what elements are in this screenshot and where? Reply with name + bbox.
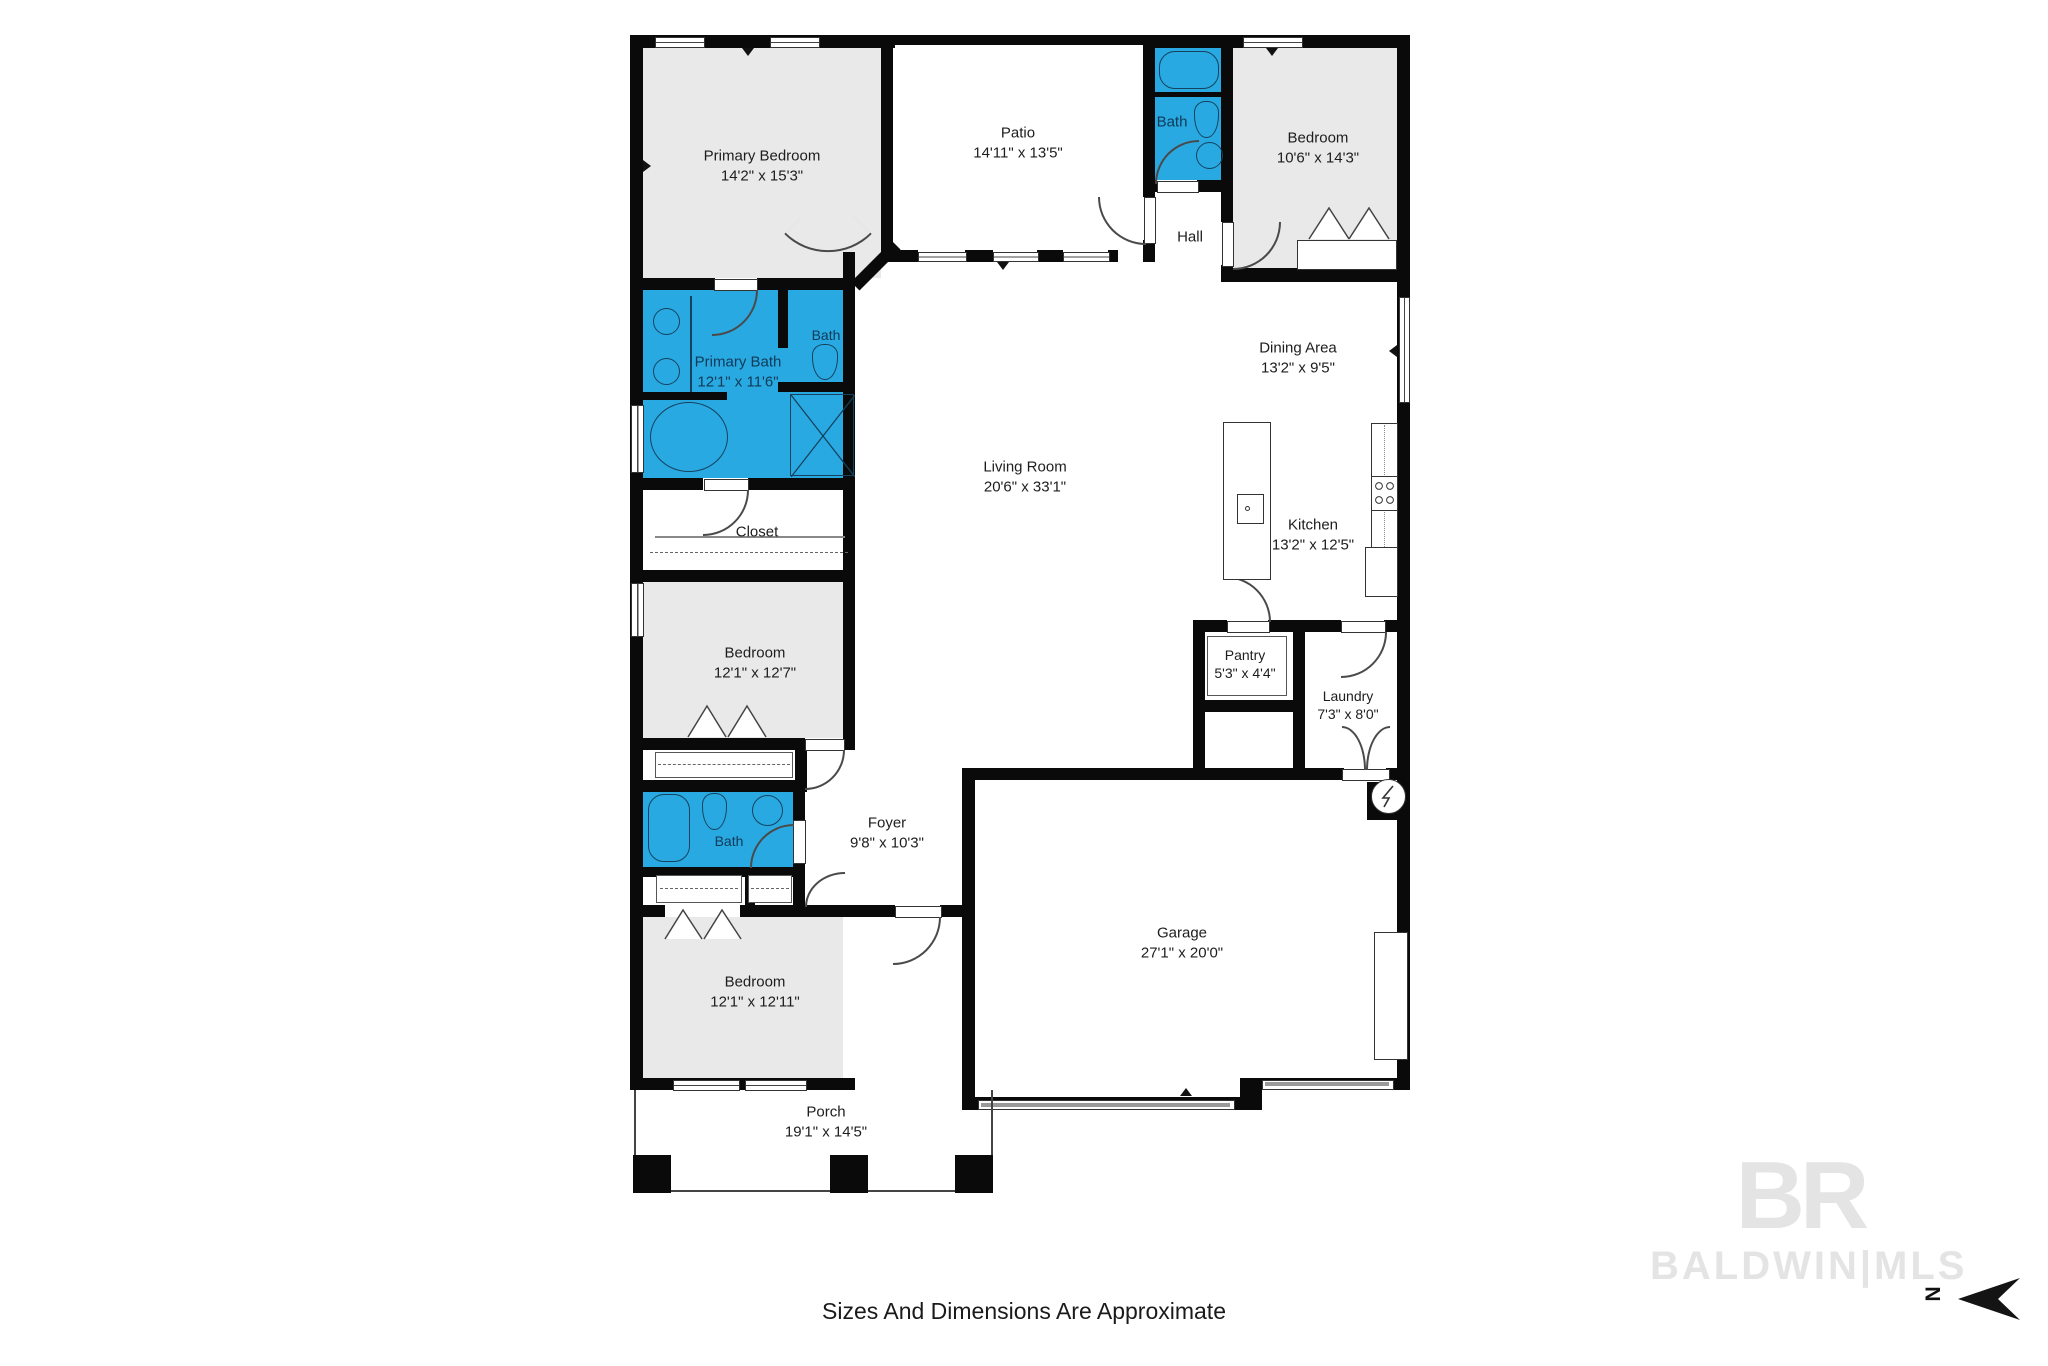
wall xyxy=(1221,35,1233,222)
baldwin-monogram: BR xyxy=(1650,1148,1950,1244)
closet-linen xyxy=(655,752,793,778)
wall xyxy=(1384,620,1410,632)
wall xyxy=(1305,620,1341,632)
door-arc-icon xyxy=(1341,632,1387,678)
window-icon xyxy=(673,1080,740,1091)
porch-post xyxy=(830,1155,868,1193)
wall xyxy=(881,250,918,262)
closet-linen xyxy=(656,875,742,903)
window-icon xyxy=(993,252,1039,262)
door-arc-icon xyxy=(805,872,845,907)
wall xyxy=(962,780,975,1105)
dim-arrow xyxy=(643,160,651,172)
room-label-garage: Garage27'1" x 20'0" xyxy=(1141,924,1223,963)
closet-rod xyxy=(658,764,790,765)
window-icon xyxy=(1243,37,1303,48)
door-icon xyxy=(1227,621,1270,633)
wall xyxy=(1221,265,1233,282)
wall xyxy=(748,478,855,490)
window-icon xyxy=(631,405,644,473)
tub-icon xyxy=(650,402,728,472)
faucet-icon xyxy=(1245,506,1250,511)
wall xyxy=(1143,35,1155,197)
wall xyxy=(643,905,665,917)
window-icon xyxy=(1399,297,1410,403)
wall xyxy=(843,252,855,750)
window-icon xyxy=(918,252,967,262)
dim-arrow xyxy=(1180,1088,1192,1096)
stove-icon xyxy=(1371,476,1398,511)
bifold-door-icon xyxy=(664,908,742,940)
room-label-living: Living Room20'6" x 33'1" xyxy=(983,458,1066,497)
room-label-kitchen: Kitchen13'2" x 12'5" xyxy=(1272,516,1354,555)
door-arc-icon xyxy=(1342,726,1366,770)
garage-side-rect xyxy=(1374,932,1408,1060)
door-arc-icon xyxy=(1366,726,1390,770)
window-icon xyxy=(631,583,644,637)
wall xyxy=(965,250,993,262)
room-label-bedroom-mid: Bedroom12'1" x 12'7" xyxy=(714,644,796,683)
room-label-closet: Closet xyxy=(736,522,779,542)
door-arc-icon xyxy=(893,917,941,965)
room-label-primary-bath: Primary Bath12'1" x 11'6" xyxy=(695,353,782,392)
door-icon xyxy=(793,820,806,864)
sink-icon xyxy=(1196,142,1223,169)
closet-linen xyxy=(748,875,792,903)
wall xyxy=(643,570,855,582)
closet-rod xyxy=(751,888,789,889)
window-icon xyxy=(745,1080,807,1091)
closet-recess xyxy=(1297,240,1397,270)
dim-arrow xyxy=(742,48,754,56)
garage-door xyxy=(1265,1082,1389,1086)
garage-door xyxy=(981,1103,1230,1107)
tub-icon xyxy=(1159,51,1219,89)
wall xyxy=(757,278,855,290)
wall xyxy=(630,278,715,290)
sink-icon xyxy=(752,795,783,826)
window-icon xyxy=(655,37,705,48)
floor-plan: Primary Bedroom14'2" x 15'3" Patio14'11"… xyxy=(0,0,2048,1366)
baldwin-wordmark: BALDWIN|MLS xyxy=(1650,1244,1950,1288)
window-icon xyxy=(770,37,820,48)
room-label-bath-bottom: Bath xyxy=(715,832,744,850)
dim-arrow xyxy=(1266,48,1278,56)
bifold-door-icon xyxy=(687,704,767,738)
dishwasher xyxy=(1365,547,1398,597)
room-label-patio: Patio14'11" x 13'5" xyxy=(973,124,1063,163)
wall xyxy=(1037,250,1063,262)
baldwin-mls-watermark: BR BALDWIN|MLS xyxy=(1650,1148,1950,1288)
room-label-pantry: Pantry5'3" x 4'4" xyxy=(1214,646,1275,682)
wall xyxy=(643,738,805,750)
room-label-laundry: Laundry7'3" x 8'0" xyxy=(1317,687,1378,723)
room-label-foyer: Foyer9'8" x 10'3" xyxy=(850,814,924,853)
vanity-counter xyxy=(690,296,692,392)
door-arc-icon xyxy=(1098,197,1146,245)
room-label-dining: Dining Area13'2" x 9'5" xyxy=(1259,339,1337,378)
wall xyxy=(962,768,1344,780)
porch-edge xyxy=(634,1190,993,1192)
sink-icon xyxy=(653,308,680,335)
porch-post xyxy=(633,1155,671,1193)
wall xyxy=(1152,92,1222,97)
sink-icon xyxy=(1237,494,1264,524)
wall xyxy=(643,392,727,400)
wall xyxy=(1233,268,1410,282)
door-arc-icon xyxy=(1225,576,1271,622)
room-label-bath-wc: Bath xyxy=(812,326,841,344)
disclaimer-text: Sizes And Dimensions Are Approximate xyxy=(0,1298,2048,1325)
wall xyxy=(881,45,893,252)
tub-icon xyxy=(648,794,690,862)
closet-rod xyxy=(660,888,738,889)
wall xyxy=(1193,700,1305,712)
dim-arrow xyxy=(997,262,1009,270)
wall xyxy=(843,905,895,917)
window-icon xyxy=(1063,252,1110,262)
sink-icon xyxy=(653,358,680,385)
room-label-primary-bedroom: Primary Bedroom14'2" x 15'3" xyxy=(704,147,821,186)
room-label-porch: Porch19'1" x 14'5" xyxy=(785,1103,867,1142)
wall xyxy=(643,478,703,490)
wall xyxy=(1293,620,1305,780)
room-label-bath-top: Bath xyxy=(1157,112,1188,132)
wall xyxy=(778,290,788,348)
shower-icon xyxy=(790,394,854,476)
room-label-bedroom-top: Bedroom10'6" x 14'3" xyxy=(1277,129,1359,168)
porch-post xyxy=(955,1155,993,1193)
door-arc-icon xyxy=(805,750,845,790)
wall xyxy=(883,35,1155,45)
dim-arrow xyxy=(1389,345,1397,357)
closet-rod xyxy=(650,552,848,553)
room-label-bedroom-bottom: Bedroom12'1" x 12'11" xyxy=(710,973,800,1012)
water-heater-icon xyxy=(1371,779,1406,814)
wall xyxy=(643,780,805,792)
room-label-hall: Hall xyxy=(1177,227,1203,247)
wall xyxy=(630,35,643,1090)
wall xyxy=(630,1078,855,1090)
bifold-door-icon xyxy=(1308,206,1390,240)
